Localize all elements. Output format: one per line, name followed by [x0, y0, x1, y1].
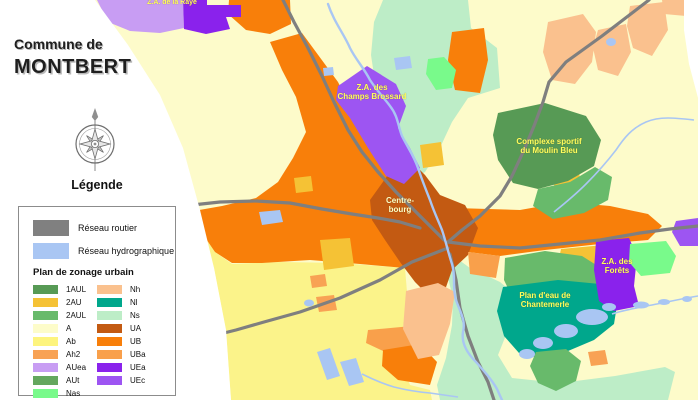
- zone-code-Nh: Nh: [130, 285, 140, 294]
- map-label-line: Plan d'eau de: [495, 291, 595, 300]
- map-label-complexe-sportif: Complexe sportif du Moulin Bleu: [499, 137, 599, 156]
- zone-code-Ns: Ns: [130, 311, 140, 320]
- zone-code-UBa: UBa: [130, 350, 146, 359]
- zoning-legend-columns: 1AUL 2AU 2AUL A Ab Ah2 AUea AUt Nas Nh N…: [33, 283, 175, 400]
- pond-6: [633, 302, 649, 309]
- zoning-legend-column-2: Nh Nl Ns UA UB UBa UEa UEc: [97, 283, 173, 400]
- map-label-line: Champs Brossard: [322, 92, 422, 101]
- zone-code-Ah2: Ah2: [66, 350, 80, 359]
- zone-swatch-AUt: [33, 376, 58, 386]
- legend-row-UB: UB: [97, 335, 173, 348]
- pond-8: [682, 296, 692, 302]
- zone-swatch-Nas: [33, 389, 58, 399]
- plan-eau-pond-3: [533, 337, 553, 349]
- map-label-za-forets: Z.A. des Forêts: [567, 257, 667, 276]
- hydrography-label: Réseau hydrographique: [78, 246, 174, 256]
- zone-UBa-east: [468, 252, 500, 278]
- zone-swatch-Nl: [97, 298, 122, 308]
- zone-code-AUt: AUt: [66, 376, 79, 385]
- map-title-line1: Commune de: [14, 36, 131, 52]
- pond-9: [606, 38, 616, 46]
- legend-row-A: A: [33, 322, 97, 335]
- legend-row-AUt: AUt: [33, 374, 97, 387]
- zone-code-UEc: UEc: [130, 376, 145, 385]
- map-label-line: Centre-: [350, 196, 450, 205]
- legend-row-Ah2: Ah2: [33, 348, 97, 361]
- map-label-line: Forêts: [567, 266, 667, 275]
- legend-row-roads: Réseau routier: [33, 216, 175, 239]
- zone-code-A: A: [66, 324, 71, 333]
- legend-row-Ab: Ab: [33, 335, 97, 348]
- map-label-plan-eau-chantemerle: Plan d'eau de Chantemerle: [495, 291, 595, 310]
- zone-swatch-A: [33, 324, 58, 334]
- map-label-line: bourg: [350, 205, 450, 214]
- plan-eau-pond-1: [576, 309, 608, 325]
- zoning-heading: Plan de zonage urbain: [33, 267, 175, 278]
- legend-panel: Réseau routier Réseau hydrographique Pla…: [18, 206, 176, 396]
- montbert-zoning-map-page: Z.A. de la Raye Z.A. des Champs Brossard…: [0, 0, 698, 400]
- zone-code-UEa: UEa: [130, 363, 146, 372]
- zone-swatch-Ns: [97, 311, 122, 321]
- zone-2AU-1: [320, 238, 354, 270]
- map-label-line: Chantemerle: [495, 300, 595, 309]
- legend-row-Nas: Nas: [33, 387, 97, 400]
- legend-row-UBa: UBa: [97, 348, 173, 361]
- zone-code-2AUL: 2AUL: [66, 311, 86, 320]
- legend-row-2AU: 2AU: [33, 296, 97, 309]
- map-label-centre-bourg: Centre- bourg: [350, 196, 450, 215]
- pond-7: [658, 299, 670, 305]
- zone-code-AUea: AUea: [66, 363, 86, 372]
- pond-2: [394, 56, 412, 70]
- zone-code-Nl: Nl: [130, 298, 138, 307]
- pond-3: [323, 67, 334, 76]
- zone-swatch-Nh: [97, 285, 122, 295]
- hydrography-swatch: [33, 243, 69, 259]
- zone-2AU-2: [294, 176, 313, 193]
- zone-swatch-UEc: [97, 376, 122, 386]
- map-title: Commune de MONTBERT: [14, 36, 131, 79]
- zone-swatch-2AU: [33, 298, 58, 308]
- legend-row-2AUL: 2AUL: [33, 309, 97, 322]
- legend-row-hydrography: Réseau hydrographique: [33, 239, 175, 262]
- map-label-line: Z.A. des: [567, 257, 667, 266]
- map-label-line: Complexe sportif: [499, 137, 599, 146]
- zone-swatch-1AUL: [33, 285, 58, 295]
- zone-swatch-Ah2: [33, 350, 58, 360]
- zone-Ah2-3: [588, 350, 608, 366]
- zone-swatch-UB: [97, 337, 122, 347]
- plan-eau-pond-2: [554, 324, 578, 338]
- map-label-line: du Moulin Bleu: [499, 146, 599, 155]
- map-label-line: Z.A. de la Raye: [122, 0, 222, 7]
- zone-swatch-AUea: [33, 363, 58, 373]
- map-title-line2: MONTBERT: [14, 56, 131, 79]
- zone-code-UA: UA: [130, 324, 141, 333]
- plan-eau-pond-5: [602, 303, 616, 311]
- zone-code-UB: UB: [130, 337, 141, 346]
- zone-2AU-4: [420, 142, 444, 168]
- zone-swatch-Ab: [33, 337, 58, 347]
- legend-row-UEc: UEc: [97, 374, 173, 387]
- zone-code-Ab: Ab: [66, 337, 76, 346]
- zone-swatch-UBa: [97, 350, 122, 360]
- plan-eau-pond-4: [519, 349, 535, 359]
- zone-code-2AU: 2AU: [66, 298, 82, 307]
- zoning-legend-column-1: 1AUL 2AU 2AUL A Ab Ah2 AUea AUt Nas: [33, 283, 97, 400]
- zone-code-1AUL: 1AUL: [66, 285, 86, 294]
- zone-Ah2-1: [310, 274, 327, 288]
- zone-swatch-UEa: [97, 363, 122, 373]
- road-network-swatch: [33, 220, 69, 236]
- legend-row-UEa: UEa: [97, 361, 173, 374]
- pond-10: [304, 300, 314, 307]
- legend-row-1AUL: 1AUL: [33, 283, 97, 296]
- legend-row-Ns: Ns: [97, 309, 173, 322]
- map-label-za-champs-brossard: Z.A. des Champs Brossard: [322, 83, 422, 102]
- zone-swatch-2AUL: [33, 311, 58, 321]
- zone-swatch-UA: [97, 324, 122, 334]
- road-network-label: Réseau routier: [78, 223, 137, 233]
- zone-code-Nas: Nas: [66, 389, 80, 398]
- legend-row-UA: UA: [97, 322, 173, 335]
- legend-row-Nl: Nl: [97, 296, 173, 309]
- legend-row-AUea: AUea: [33, 361, 97, 374]
- map-label-za-la-raye: Z.A. de la Raye: [122, 0, 222, 7]
- legend-heading: Légende: [0, 178, 194, 192]
- legend-row-Nh: Nh: [97, 283, 173, 296]
- zone-UB-patch-north: [448, 28, 488, 93]
- map-label-line: Z.A. des: [322, 83, 422, 92]
